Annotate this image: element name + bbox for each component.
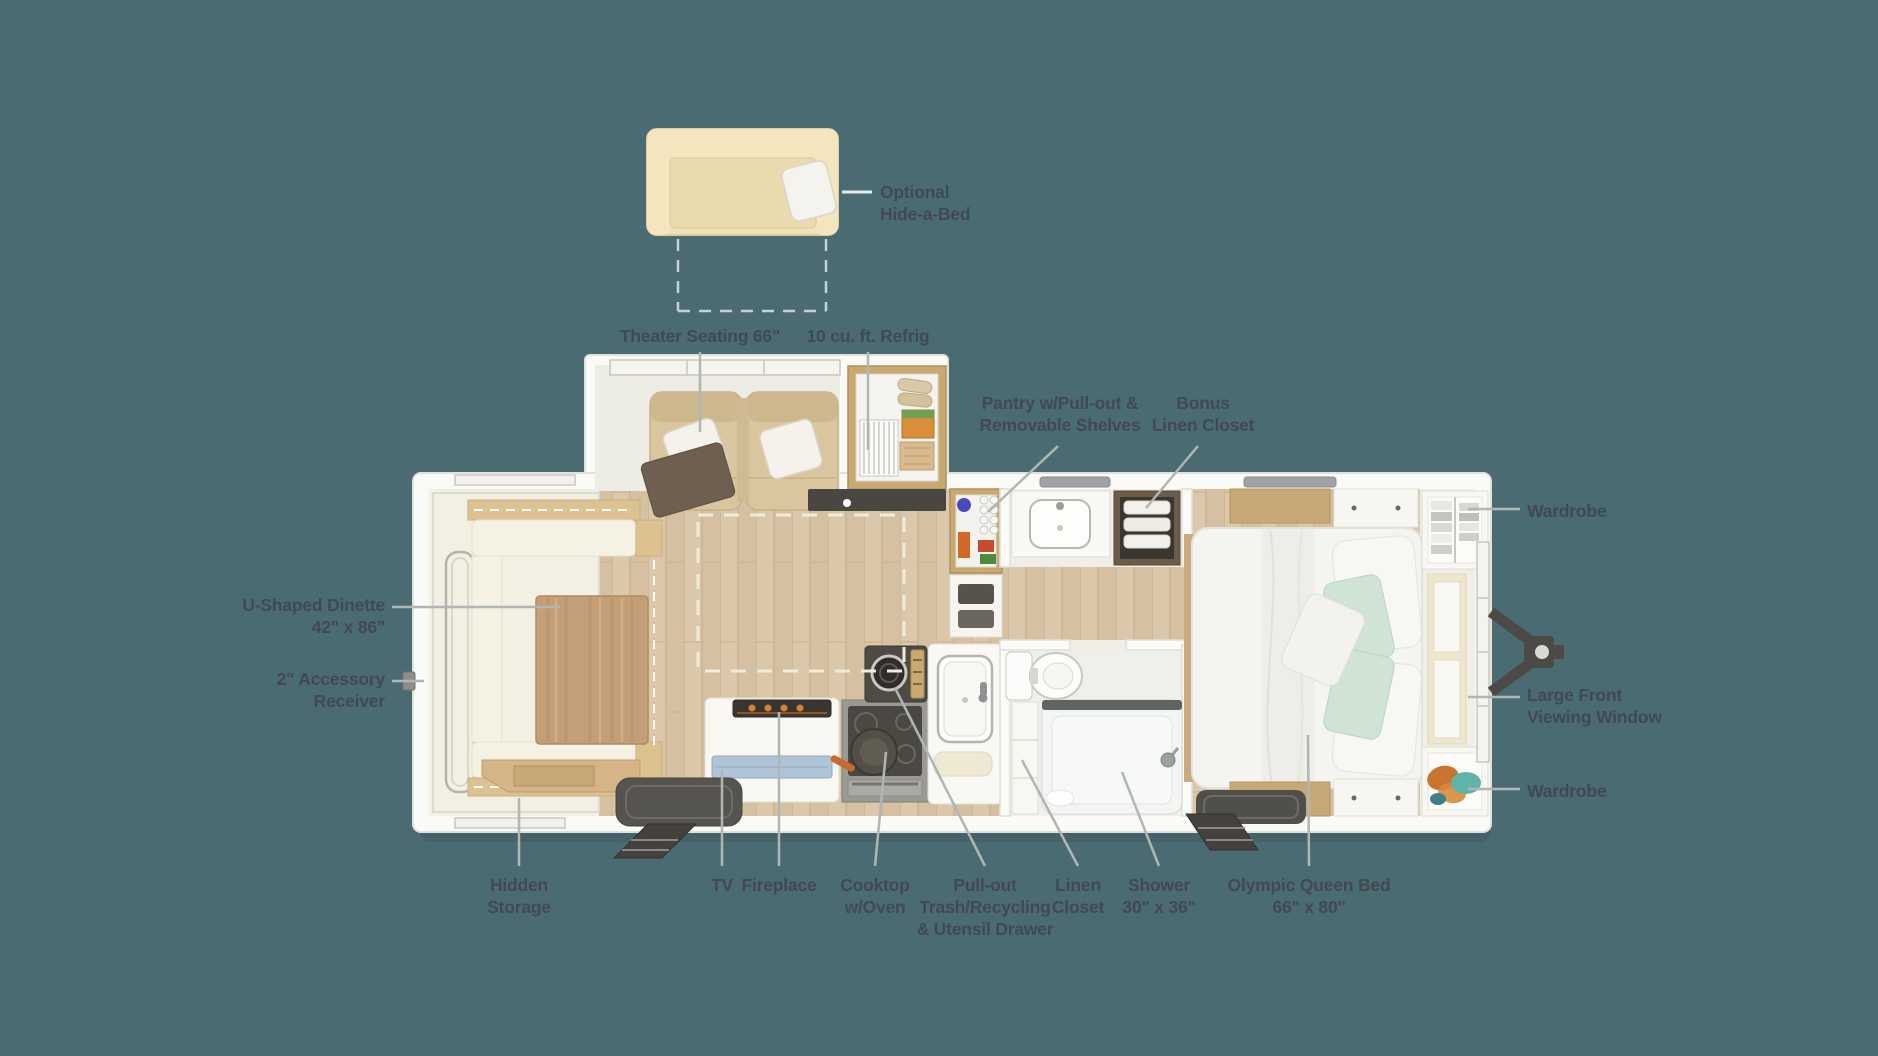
hitch-icon [1491,612,1564,692]
bedroom [1184,489,1489,824]
dinette-bench [472,556,502,742]
label-linen-closet: Linen Closet [1052,874,1104,918]
label-u-shaped-dinette: U-Shaped Dinette 42" x 86" [242,594,385,638]
roof-vent-bath [1040,477,1110,487]
pantry-item [980,554,996,564]
pantry [950,489,1002,637]
label-cooktop: Cooktop w/Oven [840,874,910,918]
slideout-window [610,360,840,375]
toilet-tank [1006,652,1032,700]
pantry-item [957,498,971,512]
hide-a-bed-sofa [647,129,838,235]
leader-queen-bed [1308,735,1309,866]
label-pull-out-trash: Pull-out Trash/Recycling & Utensil Drawe… [917,874,1054,940]
label-wardrobe-top: Wardrobe [1527,500,1606,522]
nightstand [1334,489,1418,527]
label-optional-hide-a-bed: Optional Hide-a-Bed [880,181,970,225]
label-shower: Shower 30" x 36" [1122,874,1195,918]
pantry-item [978,540,994,552]
towel [1124,535,1170,548]
shower-head [1161,753,1175,767]
clothes [1451,772,1481,794]
label-tv: TV [711,874,733,896]
roof-vent [1244,477,1336,487]
label-olympic-queen-bed: Olympic Queen Bed 66" x 80" [1228,874,1391,918]
label-bonus-linen-closet: Bonus Linen Closet [1152,392,1255,436]
label-wardrobe-bottom: Wardrobe [1527,780,1606,802]
floorplan-canvas: Optional Hide-a-Bed Theater Seating 66" … [0,0,1878,1056]
pantry-item [958,532,970,558]
label-theater-seating: Theater Seating 66" [620,325,780,347]
label-hidden-storage: Hidden Storage [487,874,551,918]
nightstand [1334,779,1418,816]
faucet [979,694,988,703]
hide-a-bed-projection [678,239,826,311]
linen-closet [1012,702,1038,814]
label-refrigerator: 10 cu. ft. Refrig [806,325,929,347]
dinette-bench [472,520,636,556]
trash-bin [872,656,906,690]
utensil-drawer [911,650,924,698]
shower-glass [1042,700,1182,710]
label-fireplace: Fireplace [741,874,816,896]
towel [1124,518,1170,531]
label-pantry: Pantry w/Pull-out & Removable Shelves [980,392,1141,436]
corridor-floor [1002,567,1185,640]
overhead-cabinet [1230,489,1330,523]
fridge-landing-counter [808,489,946,511]
label-large-front-viewing-window: Large Front Viewing Window [1527,684,1662,728]
label-accessory-receiver: 2" Accessory Receiver [277,668,385,712]
